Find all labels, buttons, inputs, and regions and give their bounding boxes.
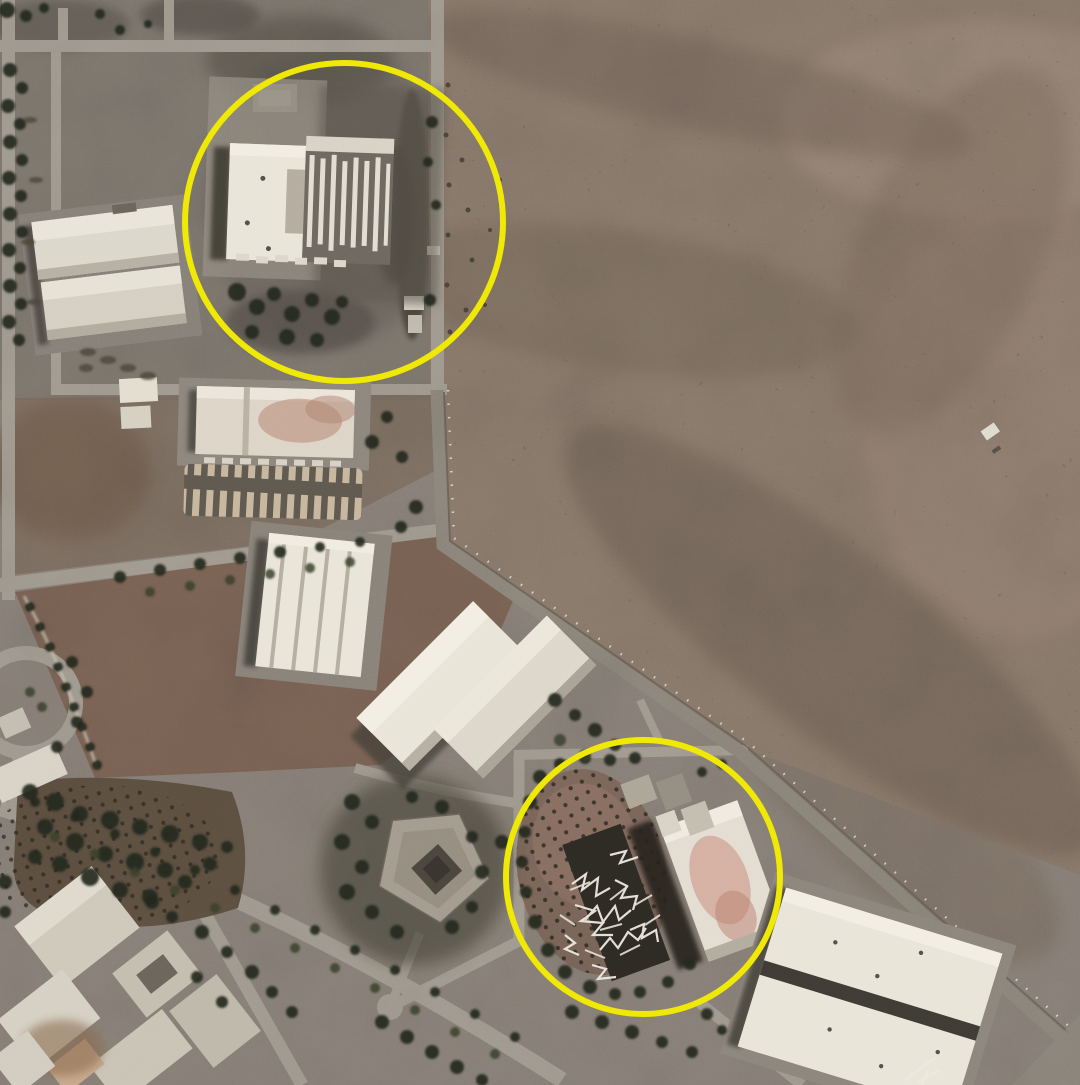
film-grain (0, 0, 1080, 1085)
satellite-scene (0, 0, 1080, 1085)
satellite-image (0, 0, 1080, 1085)
